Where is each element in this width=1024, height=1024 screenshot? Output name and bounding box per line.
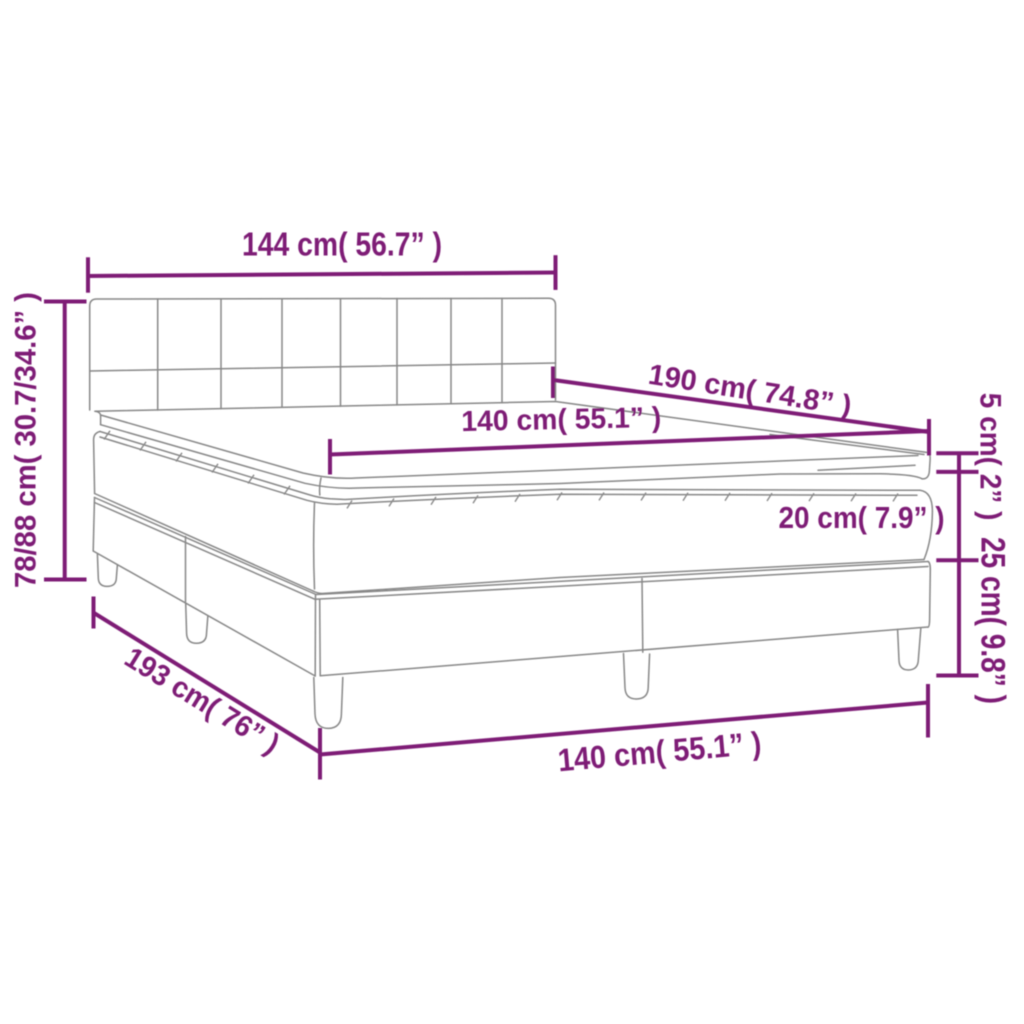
svg-text:20 cm( 7.9” ): 20 cm( 7.9” ) bbox=[779, 500, 945, 535]
svg-text:25 cm( 9.8” ): 25 cm( 9.8” ) bbox=[974, 537, 1012, 704]
svg-text:144 cm( 56.7” ): 144 cm( 56.7” ) bbox=[242, 226, 442, 263]
svg-text:78/88 cm( 30.7/34.6” ): 78/88 cm( 30.7/34.6” ) bbox=[10, 292, 43, 588]
svg-text:5 cm( 2” ): 5 cm( 2” ) bbox=[974, 393, 1007, 521]
svg-text:140 cm( 55.1” ): 140 cm( 55.1” ) bbox=[461, 402, 662, 438]
